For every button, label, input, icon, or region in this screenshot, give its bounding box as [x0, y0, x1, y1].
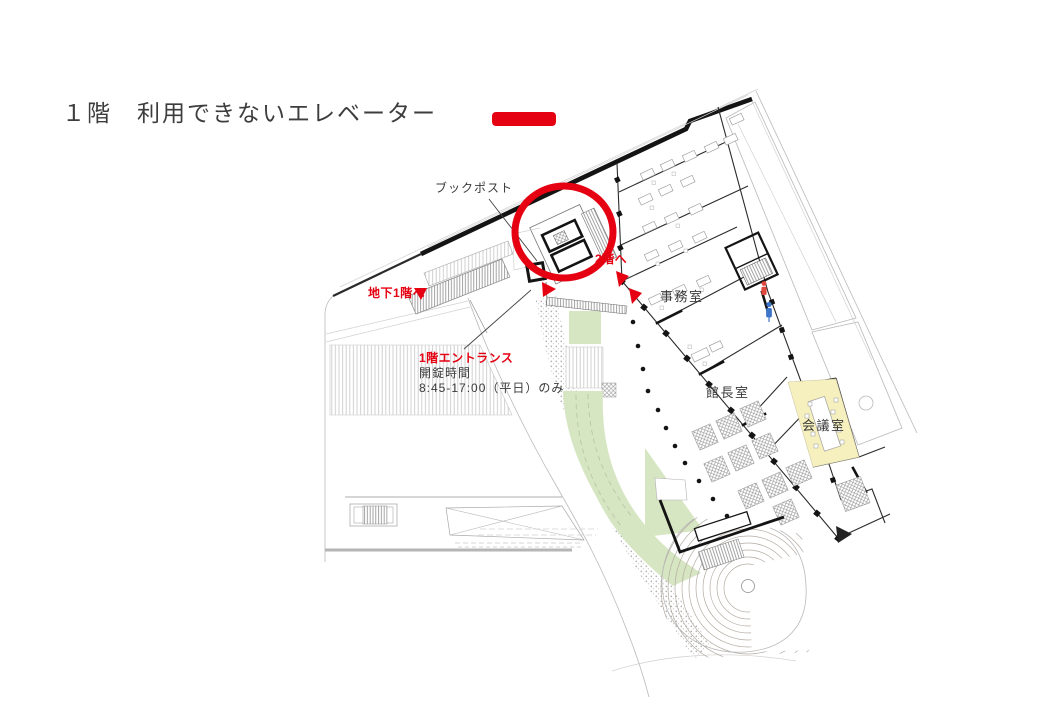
person-icon-blue [766, 302, 772, 322]
entrance-name-label: 1階エントランス [419, 350, 513, 365]
person-icon-red [761, 281, 766, 295]
office-furniture [638, 113, 744, 365]
entrance-arrow-icon [542, 282, 556, 297]
road-and-docks [325, 497, 598, 550]
office-label: 事務室 [660, 289, 704, 304]
to-2f-label: 2階へ [595, 251, 627, 266]
to-b1f-label: 地下1階へ [368, 285, 425, 300]
to-2f-arrow2-icon [629, 288, 642, 304]
meeting-room-label: 会議室 [802, 418, 846, 433]
book-post-label: ブックポスト [435, 180, 513, 195]
floorplan-svg: ブックポスト 2階へ 地下1階へ 事務室 館長室 会議室 1階エントランス 開錠… [0, 0, 1040, 720]
entrance-unlock-label: 開錠時間 [419, 365, 471, 380]
slide-canvas: １階 利用できないエレベーター [0, 0, 1040, 720]
director-room-label: 館長室 [706, 385, 750, 400]
south-arrow-icon [836, 526, 852, 543]
entrance-hours-label: 8:45-17:00（平日）のみ [419, 381, 564, 395]
